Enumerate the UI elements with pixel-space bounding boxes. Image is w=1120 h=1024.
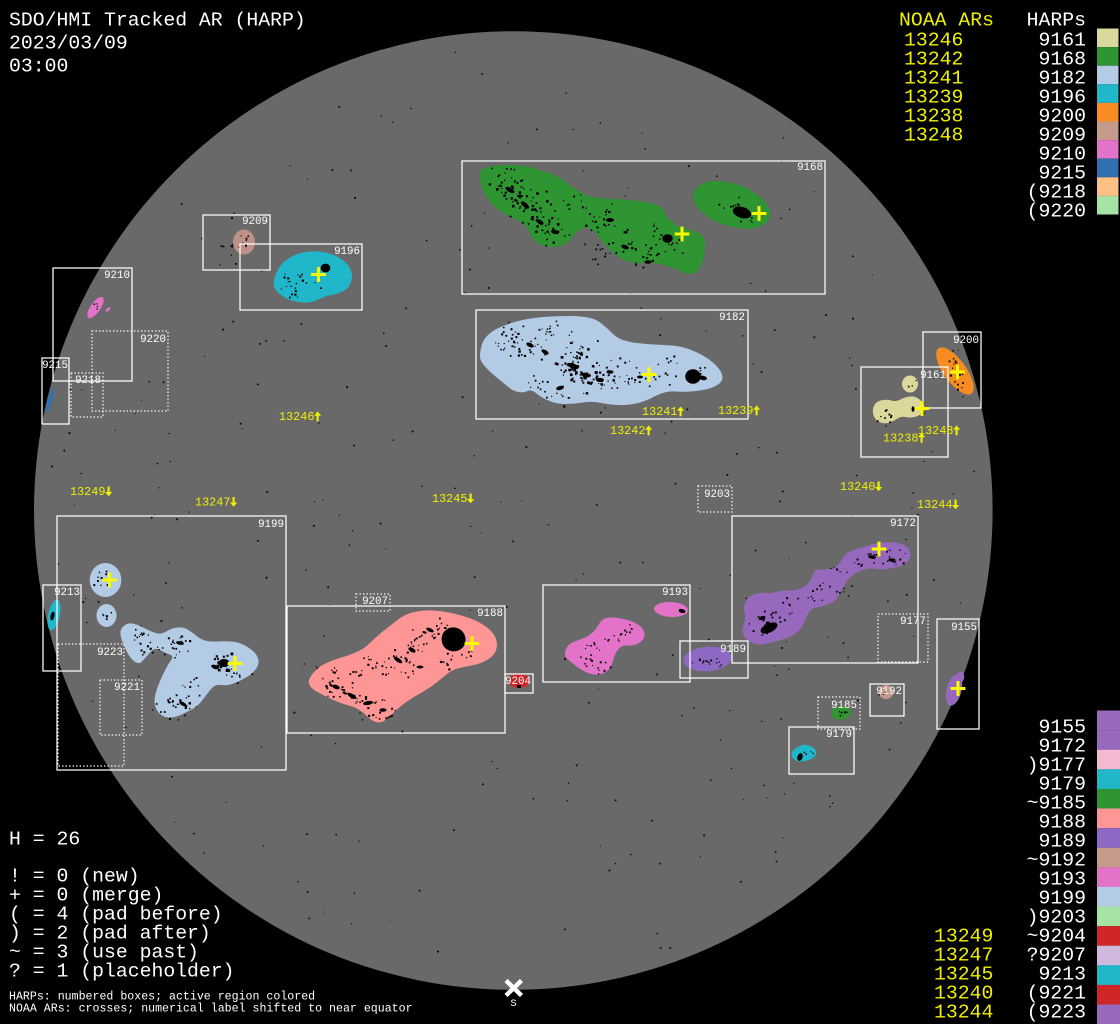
svg-text:9223: 9223 [97,647,123,659]
svg-text:H = 26: H = 26 [9,829,80,851]
svg-text:9161: 9161 [920,370,946,382]
svg-text:(9223: (9223 [1027,1002,1086,1024]
svg-text:9207: 9207 [362,596,388,608]
svg-text:SDO/HMI Tracked AR (HARP): SDO/HMI Tracked AR (HARP) [9,10,306,32]
svg-text:9204: 9204 [505,676,531,688]
svg-text:9192: 9192 [876,686,902,698]
svg-text:? = 1 (placeholder): ? = 1 (placeholder) [9,961,235,983]
svg-text:2023/03/09: 2023/03/09 [9,33,128,55]
svg-text:13240: 13240 [840,480,875,494]
svg-text:13246: 13246 [279,410,314,424]
svg-text:13248: 13248 [904,125,963,147]
svg-text:NOAA ARs: NOAA ARs [899,10,994,32]
svg-text:03:00: 03:00 [9,56,68,78]
svg-text:9193: 9193 [662,587,688,599]
svg-text:9215: 9215 [42,360,68,372]
svg-text:(9220: (9220 [1027,201,1086,223]
svg-text:9209: 9209 [242,216,268,228]
svg-text:HARPs: HARPs [1027,10,1086,32]
svg-text:13242: 13242 [610,424,645,438]
svg-text:9199: 9199 [258,519,284,531]
svg-text:13239: 13239 [718,404,753,418]
svg-text:9196: 9196 [334,246,360,258]
svg-text:9155: 9155 [951,622,977,634]
svg-text:9221: 9221 [114,682,140,694]
svg-text:S: S [510,998,516,1010]
svg-text:9177: 9177 [900,616,926,628]
svg-text:9210: 9210 [104,270,130,282]
svg-text:9213: 9213 [54,587,80,599]
svg-text:13249: 13249 [70,485,105,499]
svg-text:9189: 9189 [720,644,746,656]
svg-text:9182: 9182 [719,312,745,324]
svg-text:9188: 9188 [477,608,503,620]
svg-text:NOAA ARs: crosses; numerical l: NOAA ARs: crosses; numerical label shift… [9,1003,413,1016]
svg-text:9179: 9179 [826,729,852,741]
svg-text:13241: 13241 [642,405,677,419]
svg-text:13245: 13245 [432,492,467,506]
svg-text:13247: 13247 [195,496,230,510]
svg-text:13244: 13244 [934,1002,993,1024]
svg-text:9220: 9220 [140,334,166,346]
svg-text:9185: 9185 [831,700,857,712]
svg-text:13238: 13238 [883,432,918,446]
svg-text:13244: 13244 [917,498,952,512]
svg-text:9168: 9168 [797,162,823,174]
svg-text:9200: 9200 [953,335,979,347]
svg-text:9172: 9172 [890,518,916,530]
svg-text:9203: 9203 [704,489,730,501]
svg-text:9218: 9218 [75,375,101,387]
